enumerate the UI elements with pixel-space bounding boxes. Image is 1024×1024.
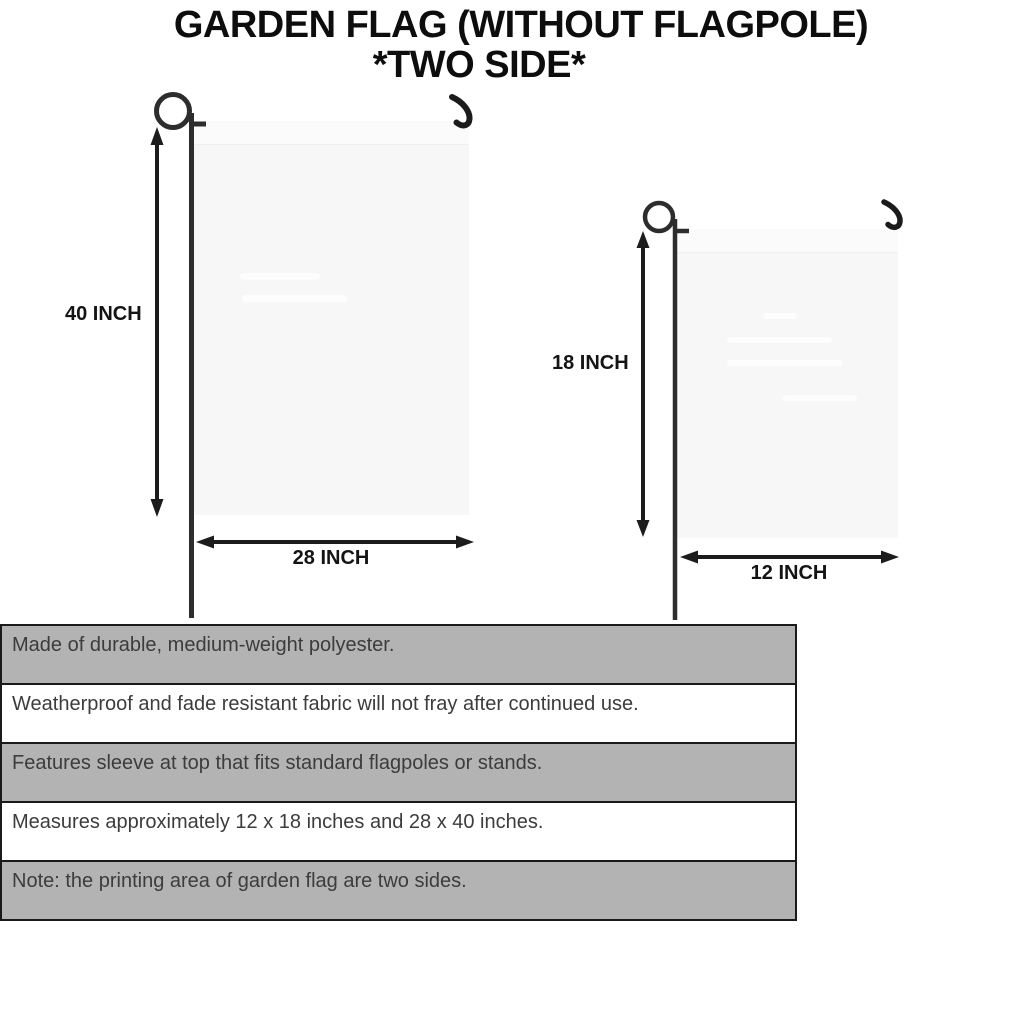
- title-line-1: GARDEN FLAG (WITHOUT FLAGPOLE): [9, 5, 1024, 45]
- large-flag-width-label: 28 INCH: [261, 547, 401, 570]
- fabric-sheen: [242, 295, 347, 302]
- large-flag-height-arrow: [151, 127, 164, 517]
- large-flag-sleeve: [193, 121, 469, 145]
- small-flag-width-label: 12 INCH: [719, 562, 859, 585]
- feature-text: Measures approximately 12 x 18 inches an…: [12, 811, 543, 833]
- feature-row: Made of durable, medium-weight polyester…: [2, 626, 795, 683]
- small-flag-canvas: [677, 229, 898, 538]
- fabric-sheen: [727, 360, 842, 366]
- small-flag-hook-icon: [884, 202, 900, 227]
- feature-text: Features sleeve at top that fits standar…: [12, 752, 542, 774]
- small-flag-height-arrow: [637, 231, 650, 537]
- small-flag-height-label: 18 INCH: [552, 352, 629, 375]
- feature-text: Weatherproof and fade resistant fabric w…: [12, 693, 639, 715]
- feature-row: Weatherproof and fade resistant fabric w…: [2, 683, 795, 742]
- small-flag-sleeve: [677, 229, 898, 253]
- large-flag-pole-loop: [157, 95, 190, 128]
- large-flag-canvas: [193, 121, 469, 515]
- fabric-sheen: [782, 395, 857, 401]
- title-line-2: *TWO SIDE*: [0, 45, 991, 85]
- fabric-sheen: [240, 273, 320, 280]
- large-flag-height-label: 40 INCH: [65, 303, 142, 326]
- fabric-sheen: [727, 337, 832, 343]
- fabric-sheen: [763, 313, 797, 319]
- page: GARDEN FLAG (WITHOUT FLAGPOLE) *TWO SIDE…: [0, 0, 1024, 1024]
- feature-text: Made of durable, medium-weight polyester…: [12, 634, 394, 656]
- page-title: GARDEN FLAG (WITHOUT FLAGPOLE) *TWO SIDE…: [0, 5, 1024, 85]
- feature-row: Note: the printing area of garden flag a…: [2, 860, 795, 919]
- feature-row: Measures approximately 12 x 18 inches an…: [2, 801, 795, 860]
- features-table: Made of durable, medium-weight polyester…: [0, 624, 797, 921]
- small-flag-pole-loop: [645, 203, 673, 231]
- feature-row: Features sleeve at top that fits standar…: [2, 742, 795, 801]
- feature-text: Note: the printing area of garden flag a…: [12, 870, 467, 892]
